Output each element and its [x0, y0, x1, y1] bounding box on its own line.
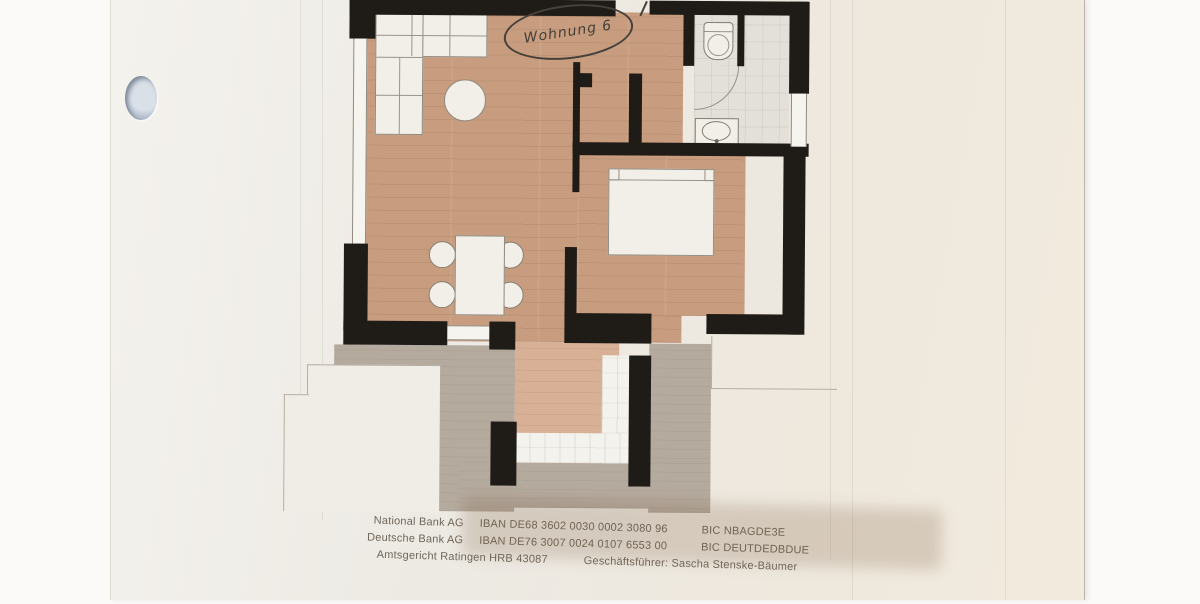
terrace-step-outline: [306, 364, 440, 512]
entrance-tiles: [514, 433, 631, 464]
wall-door-block: [579, 73, 592, 87]
toilet-bowl: [707, 34, 729, 56]
bed-corner: [704, 170, 714, 181]
wall-post: [489, 322, 515, 350]
window-east: [791, 94, 807, 147]
coffee-table: [444, 79, 486, 121]
wall-bath-divider: [737, 14, 744, 66]
wall-bedroom-west: [564, 247, 576, 317]
boundary-line: [711, 388, 837, 390]
dining-chair: [429, 241, 456, 268]
wall-bath-west: [683, 9, 694, 66]
toilet-tank-line: [704, 31, 732, 32]
window-west: [352, 39, 367, 244]
org-name: Deutsche Bank AG: [351, 529, 463, 549]
wall-bedroom-sw: [564, 313, 651, 344]
wall-vestibule-right: [629, 73, 642, 142]
bed-corner: [609, 169, 619, 180]
wall-corridor-west: [490, 422, 516, 486]
annotation-text: Wohnung 6: [523, 17, 614, 46]
wall-bedroom-east: [782, 149, 805, 335]
wall-corridor-east: [628, 355, 651, 486]
wall-west-lower: [343, 243, 368, 330]
dining-table: [454, 235, 505, 315]
boundary-line: [711, 336, 712, 388]
window-south: [447, 325, 489, 340]
wall-bedroom-north: [573, 142, 809, 157]
dining-chair: [429, 281, 456, 308]
wall-top-right: [650, 1, 808, 16]
terrace-step-outline: [283, 394, 309, 511]
wall-corner-nw: [349, 0, 375, 39]
wall-south-living: [343, 320, 447, 345]
wall-bath-east-upper: [789, 2, 810, 94]
floor-plan: Wohnung 6: [0, 0, 1200, 604]
bedroom-rug: [744, 156, 783, 314]
bed: [608, 168, 715, 256]
